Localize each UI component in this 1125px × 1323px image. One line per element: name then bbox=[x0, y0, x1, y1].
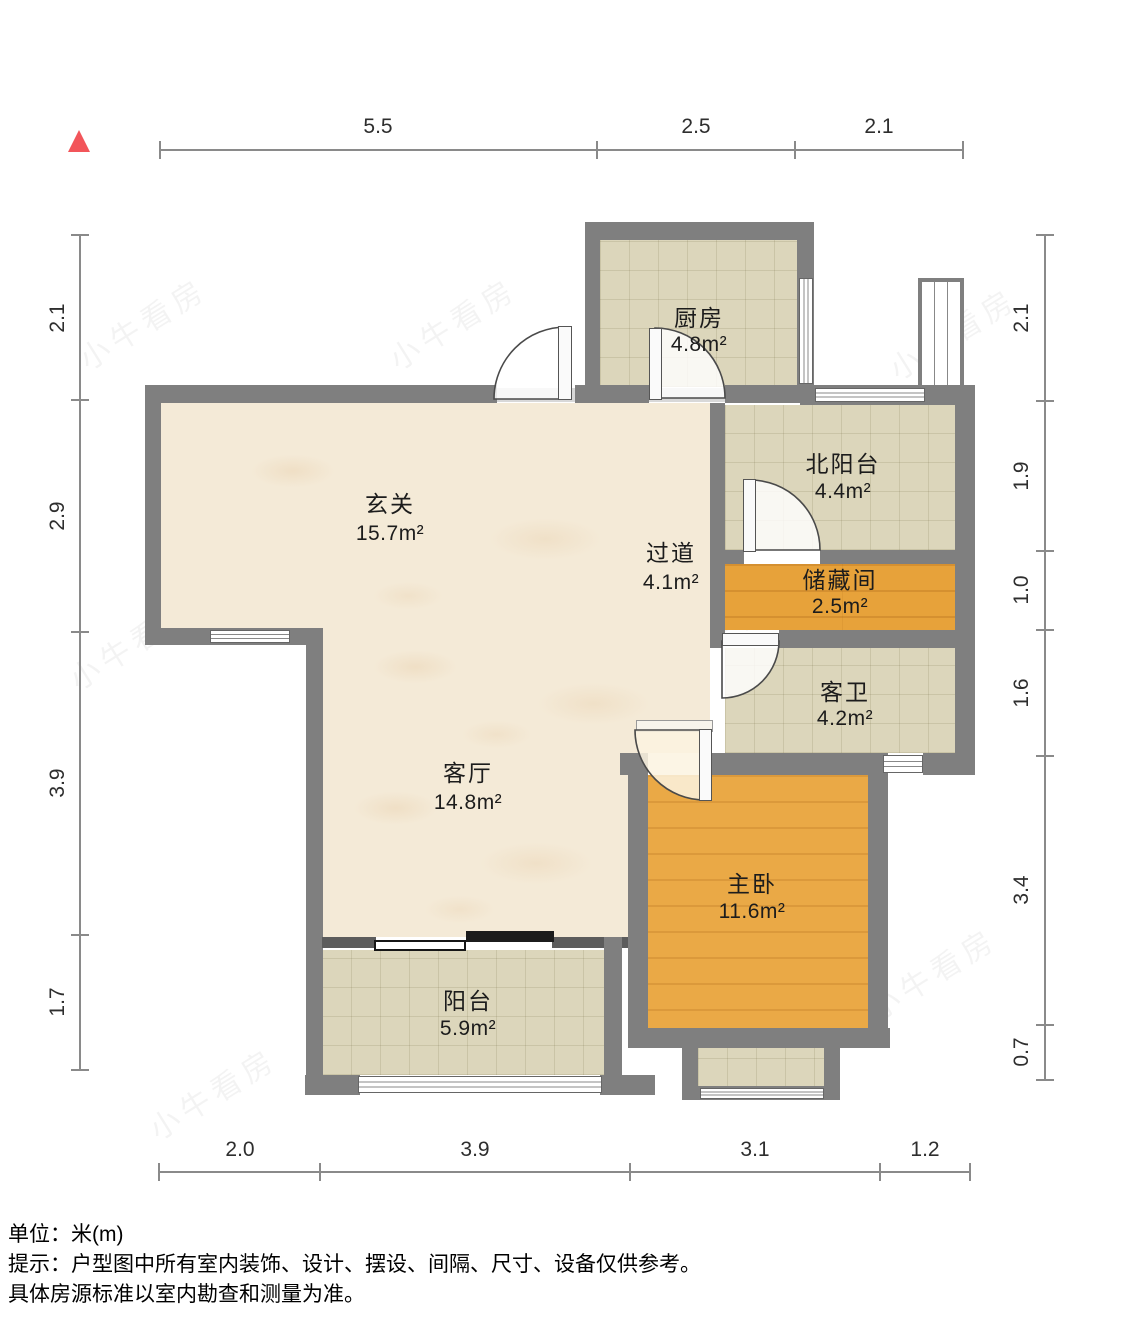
dim-top-1: 5.5 bbox=[363, 115, 392, 139]
dim-right-1: 2.1 bbox=[1010, 303, 1034, 332]
dim-top-3: 2.1 bbox=[864, 115, 893, 139]
dim-bottom-1: 2.0 bbox=[225, 1138, 254, 1162]
dim-left-1: 2.1 bbox=[46, 303, 70, 332]
footer-tip-note-2: 具体房源标准以室内勘查和测量为准。 bbox=[8, 1278, 365, 1308]
dim-left-4: 1.7 bbox=[46, 987, 70, 1016]
dim-bottom-2: 3.9 bbox=[460, 1138, 489, 1162]
dim-bottom-4: 1.2 bbox=[910, 1138, 939, 1162]
dim-top-2: 2.5 bbox=[681, 115, 710, 139]
dim-right-4: 1.6 bbox=[1010, 678, 1034, 707]
floor-plan-page: 小牛看房 小牛看房 小牛看房 小牛看房 小牛看房 小牛看房 小牛看房 小牛看房 bbox=[0, 0, 1125, 1323]
footer-tip-note: 提示：户型图中所有室内装饰、设计、摆设、间隔、尺寸、设备仅供参考。 bbox=[8, 1248, 701, 1278]
dim-left-2: 2.9 bbox=[46, 501, 70, 530]
dim-bottom-3: 3.1 bbox=[740, 1138, 769, 1162]
dimension-lines bbox=[0, 0, 1125, 1323]
dim-right-2: 1.9 bbox=[1010, 461, 1034, 490]
dim-right-3: 1.0 bbox=[1010, 575, 1034, 604]
dim-right-5: 3.4 bbox=[1010, 875, 1034, 904]
dim-left-3: 3.9 bbox=[46, 768, 70, 797]
footer-unit-note: 单位：米(m) bbox=[8, 1218, 123, 1248]
dim-right-6: 0.7 bbox=[1010, 1037, 1034, 1066]
